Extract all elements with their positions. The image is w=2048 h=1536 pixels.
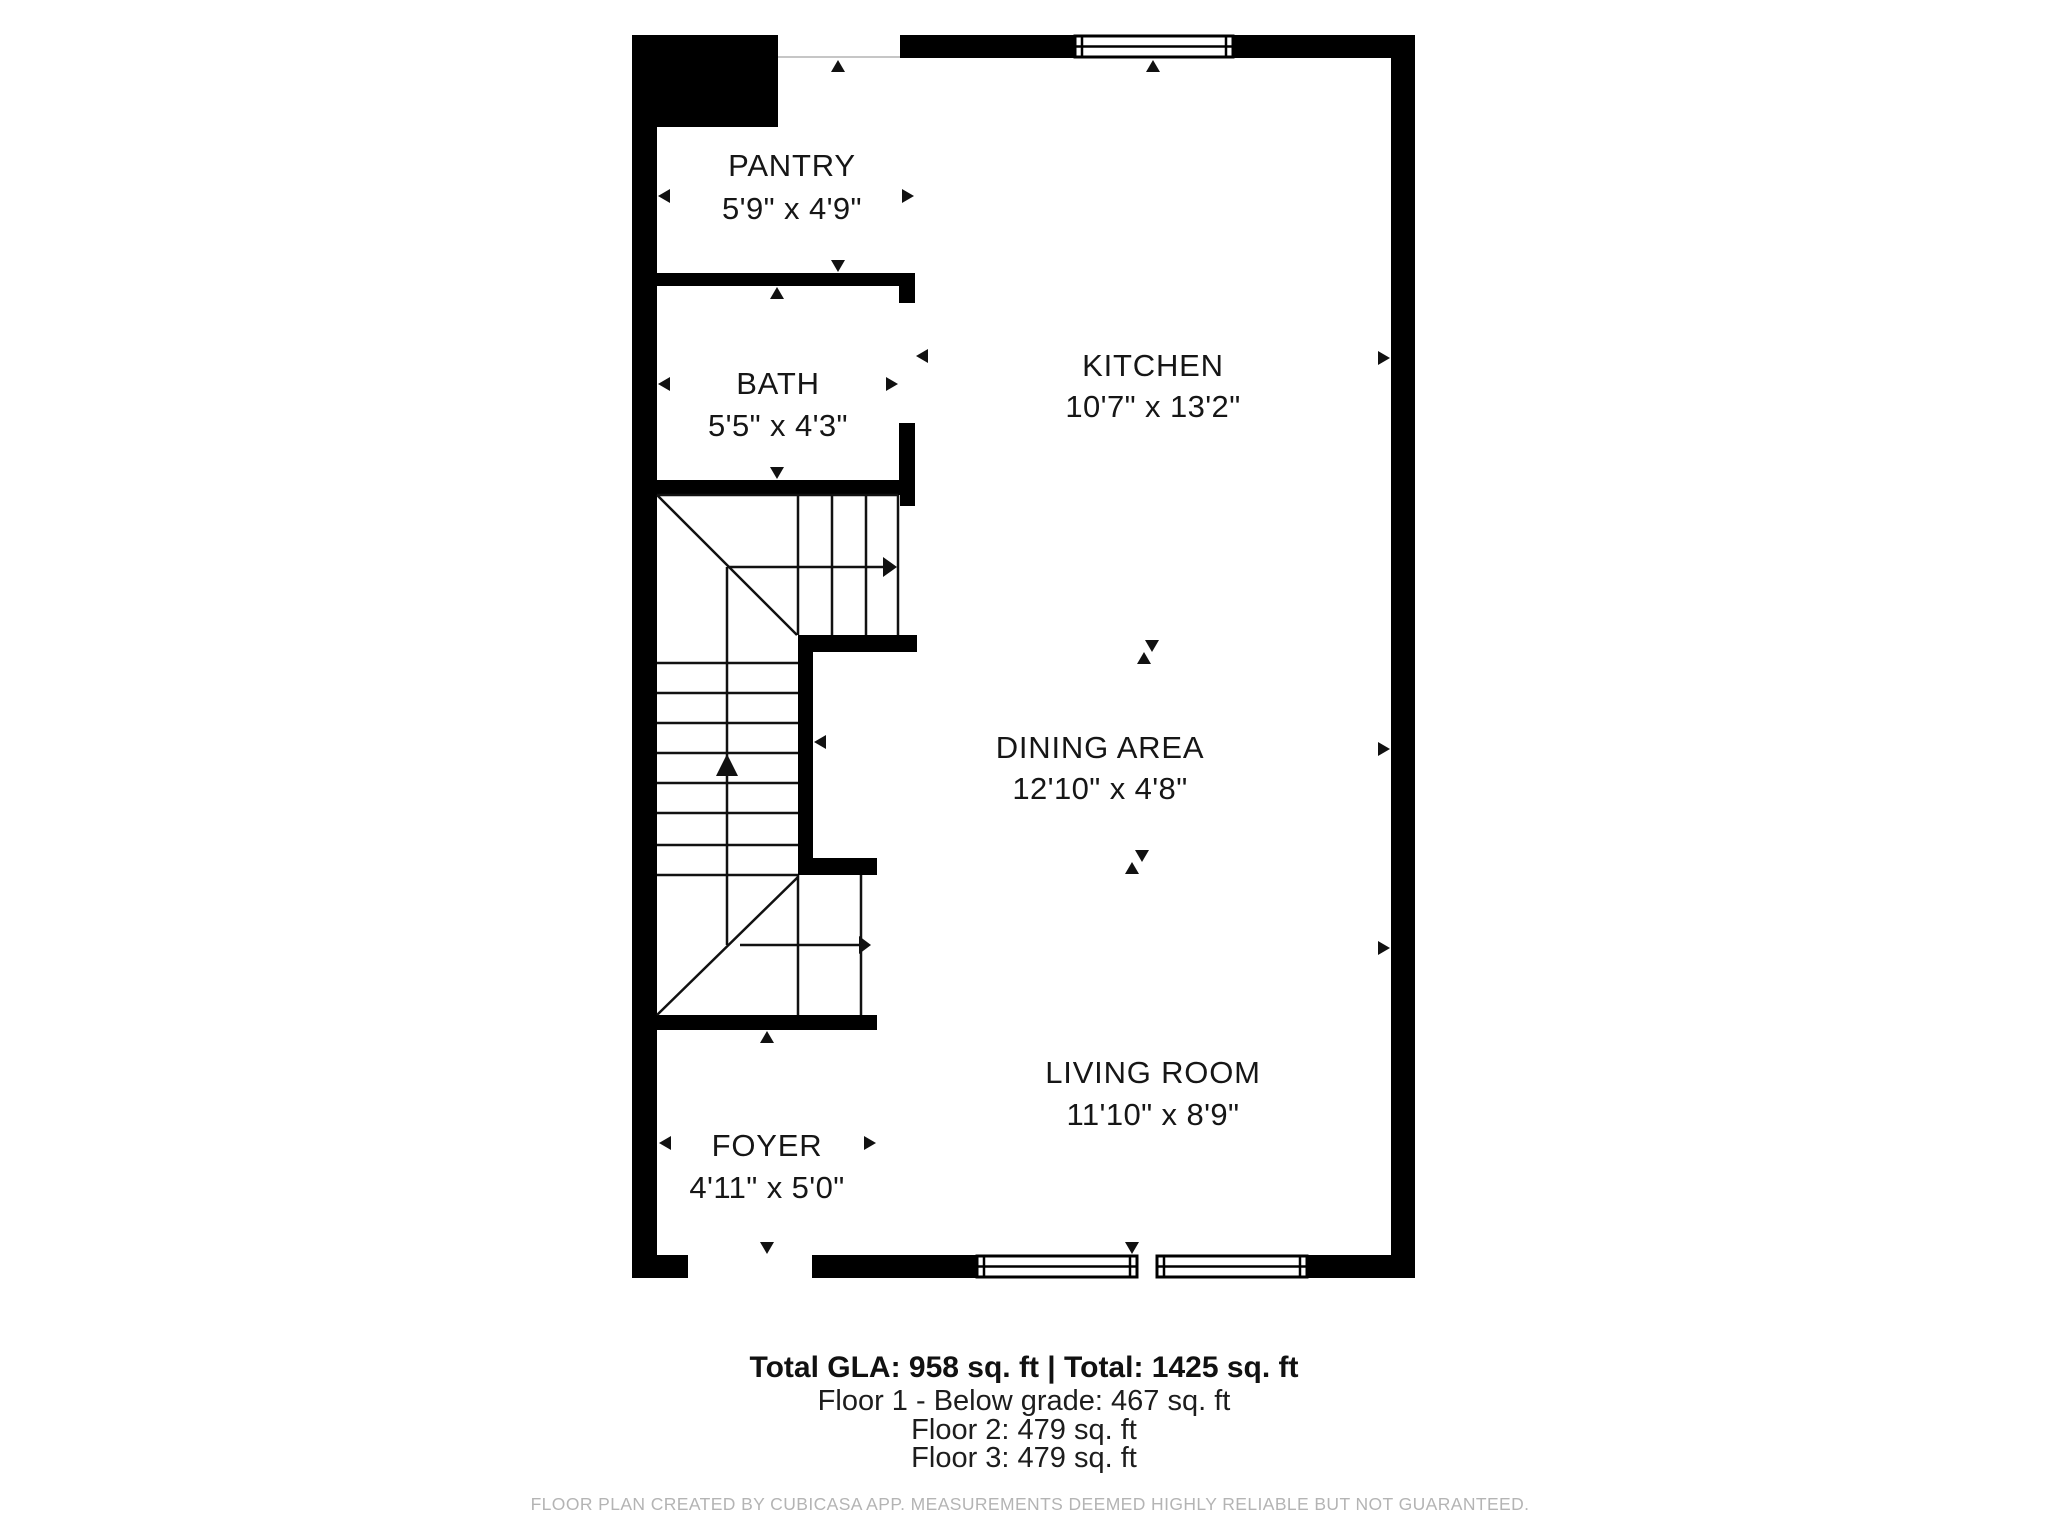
disclaimer-text: FLOOR PLAN CREATED BY CUBICASA APP. MEAS… [531,1494,1530,1514]
pantry-arrow-left-icon [658,189,670,203]
room-label-dining: DINING AREA [996,730,1205,765]
wall-top-b [1233,35,1415,58]
room-dims-living: 11'10" x 8'9" [1067,1097,1240,1132]
wall-bath-right-top [899,273,915,303]
room-label-foyer: FOYER [712,1128,823,1163]
window-top [1075,36,1233,57]
dining-arrow-down-icon [1135,850,1149,862]
room-dims-kitchen: 10'7" x 13'2" [1065,389,1240,424]
floor-plan: PANTRY 5'9" x 4'9" BATH 5'5" x 4'3" KITC… [0,0,2048,1536]
kitchen-arrow-right-icon [1378,351,1390,365]
room-label-bath: BATH [736,366,820,401]
room-dims-bath: 5'5" x 4'3" [708,408,848,443]
kitchen-arrow-left-icon [916,349,928,363]
bath-arrow-left-icon [658,377,670,391]
pantry-arrow-down-icon [831,260,845,272]
foyer-arrow-right-icon [864,1136,876,1150]
floor-1-line: Floor 1 - Below grade: 467 sq. ft [818,1385,1231,1417]
dining-arrow-up-icon [1137,652,1151,664]
living-arrow-right-icon [1378,941,1390,955]
total-gla-line: Total GLA: 958 sq. ft | Total: 1425 sq. … [749,1351,1298,1384]
staircase [657,495,898,1015]
walkline-arrow-right-upper [883,557,897,577]
dining-arrow-right-icon [1378,742,1390,756]
room-dims-pantry: 5'9" x 4'9" [722,191,862,226]
dimension-markers [658,60,1390,1254]
foyer-arrow-up-icon [760,1031,774,1043]
walkline-arrow-right-lower [859,936,871,954]
wall-stair-foyer [657,1015,877,1030]
wall-stair-stub-top [900,480,915,506]
wall-bath-bottom [632,480,915,495]
window-bottom-right [1157,1256,1307,1277]
wall-stair-vertical [798,635,813,875]
pantry-arrow-up-icon [831,60,845,72]
floor-3-line: Floor 3: 479 sq. ft [911,1442,1137,1474]
walkline-arrow-up [716,754,738,776]
room-label-pantry: PANTRY [728,148,856,183]
room-label-living: LIVING ROOM [1045,1055,1261,1090]
kitchen-arrow-up-icon [1146,60,1160,72]
bath-arrow-right-icon [886,377,898,391]
wall-stair-flange [798,858,877,875]
bath-arrow-up-icon [770,287,784,299]
kitchen-arrow-down-icon [1145,640,1159,652]
wall-left [632,35,657,1278]
wall-pantry-bath [632,273,915,286]
room-dims-dining: 12'10" x 4'8" [1012,771,1187,806]
room-dims-foyer: 4'11" x 5'0" [689,1170,844,1205]
bath-arrow-down-icon [770,467,784,479]
living-arrow-up-icon [1125,862,1139,874]
wall-right [1391,35,1415,1278]
room-label-kitchen: KITCHEN [1082,348,1224,383]
foyer-arrow-left-icon [659,1136,671,1150]
pantry-arrow-right-icon [902,189,914,203]
wall-bottom-a [632,1255,688,1278]
foyer-arrow-down-icon [760,1242,774,1254]
area-summary: Total GLA: 958 sq. ft | Total: 1425 sq. … [749,1351,1298,1474]
living-arrow-down-icon [1125,1242,1139,1254]
wall-top-a [900,35,1075,58]
dining-arrow-left-icon [814,735,826,749]
room-labels: PANTRY 5'9" x 4'9" BATH 5'5" x 4'3" KITC… [689,148,1260,1205]
wall-stair-horizontal [798,635,917,652]
window-bottom-left [977,1256,1137,1277]
wall-bottom-b [812,1255,977,1278]
wall-bottom-c [1307,1255,1415,1278]
